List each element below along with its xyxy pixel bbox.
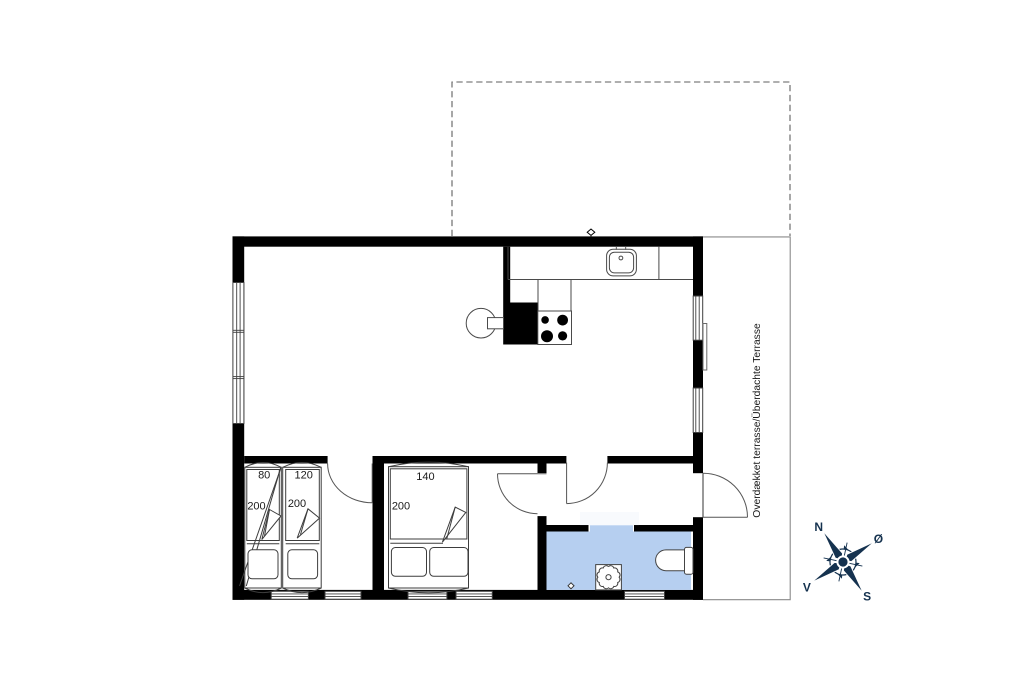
svg-text:120: 120: [295, 469, 313, 481]
svg-text:Ø: Ø: [874, 532, 883, 546]
svg-text:N: N: [814, 520, 823, 534]
svg-text:200: 200: [247, 500, 265, 512]
svg-text:80: 80: [258, 470, 270, 482]
svg-text:140: 140: [416, 471, 434, 483]
svg-text:S: S: [863, 590, 871, 604]
svg-text:200: 200: [392, 501, 410, 513]
svg-text:V: V: [803, 581, 811, 595]
svg-text:200: 200: [288, 498, 306, 510]
svg-text:Overdækket terrasse/Überdachte: Overdækket terrasse/Überdachte Terrasse: [751, 323, 763, 518]
